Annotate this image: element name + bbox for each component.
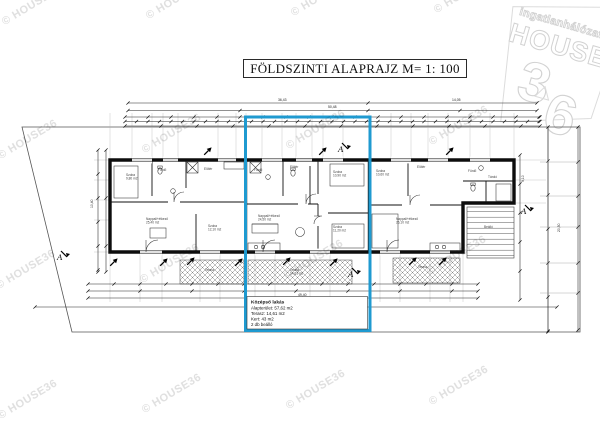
highlight-annotation-box: Középső lakás Alapterület: 57,62 m2 Tera…: [247, 297, 368, 330]
dim-label: 9,10: [521, 175, 525, 182]
section-marker: A: [347, 268, 361, 279]
annotation-line-parking: 2 db beálló: [251, 322, 273, 327]
svg-text:A: A: [337, 144, 344, 154]
dim-label: 20,50: [557, 223, 561, 232]
floor-plan-page: © HOUSE36© HOUSE36© HOUSE36© HOUSE36© HO…: [0, 0, 600, 424]
terrace-hatch: [180, 258, 460, 284]
dim-label: 50,48: [328, 105, 337, 109]
dim-label: 14,05: [452, 98, 461, 102]
room-label: Előtér: [204, 167, 213, 171]
building-outer-wall: [110, 160, 514, 252]
room-label: Előtér: [417, 165, 426, 169]
annotation-line-area: Alapterület: 57,62 m2: [251, 306, 293, 311]
section-marker: A: [56, 251, 70, 262]
annotation-line-garden: Kert: 43 m2: [251, 317, 274, 322]
section-marker: A: [337, 143, 351, 154]
dim-label: 36,43: [278, 98, 287, 102]
carport-area: [467, 207, 514, 258]
drawing-title-box: FÖLDSZINTI ALAPRAJZ M= 1: 100: [243, 59, 467, 78]
room-label: Fürdő: [468, 169, 477, 173]
room-label: Terasz: [205, 268, 215, 272]
dim-label: 10,40: [90, 199, 94, 208]
svg-text:A: A: [520, 206, 527, 216]
room-label: Tároló: [488, 175, 497, 179]
svg-text:A: A: [347, 269, 354, 279]
room-label: Előtér: [290, 165, 299, 169]
section-marker: A: [520, 205, 534, 216]
room-label: Terasz: [418, 265, 428, 269]
annotation-line-terrace: Terasz: 14,61 m2: [251, 311, 285, 316]
svg-text:A: A: [56, 252, 63, 262]
room-label: Fürdő: [254, 168, 263, 172]
room-label: Fürdő: [158, 168, 167, 172]
room-label: Beálló: [484, 225, 493, 229]
